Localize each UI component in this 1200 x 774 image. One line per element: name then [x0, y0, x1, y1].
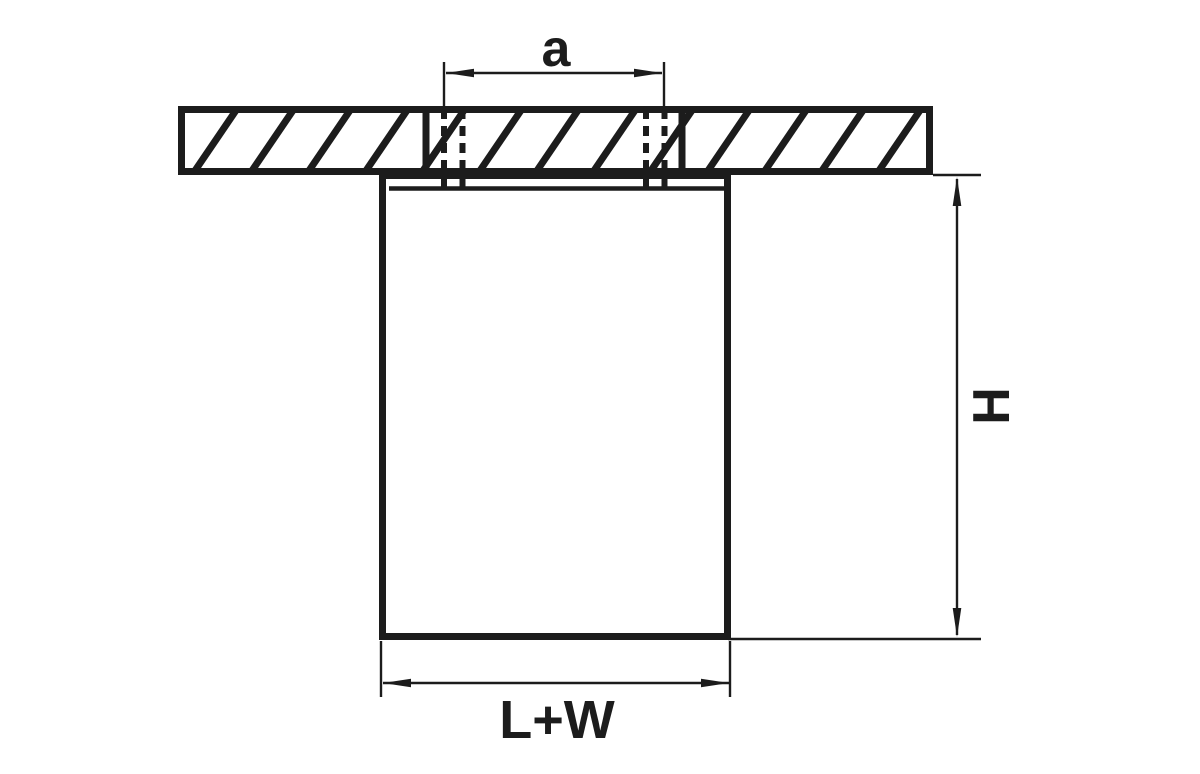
hatch-line	[133, 103, 184, 178]
ceiling-section	[133, 103, 982, 178]
dimension-a: a	[444, 20, 664, 113]
dimension-h-label: H	[963, 387, 1021, 425]
dimension-drawing: a H L+W	[0, 0, 1200, 774]
arrowhead-right	[701, 679, 729, 688]
hatch-line	[931, 103, 982, 178]
dimension-a-label: a	[542, 20, 572, 78]
arrowhead-left	[383, 679, 411, 688]
dimension-lw: L+W	[381, 641, 730, 750]
dimension-h: H	[728, 175, 1021, 639]
drawing-canvas: a H L+W	[0, 0, 1200, 774]
arrowhead-left	[446, 69, 474, 78]
arrowhead-top	[953, 177, 962, 206]
dimension-lw-label: L+W	[499, 690, 615, 750]
arrowhead-bottom	[953, 608, 962, 637]
fixture-body	[383, 176, 728, 637]
arrowhead-right	[634, 69, 662, 78]
